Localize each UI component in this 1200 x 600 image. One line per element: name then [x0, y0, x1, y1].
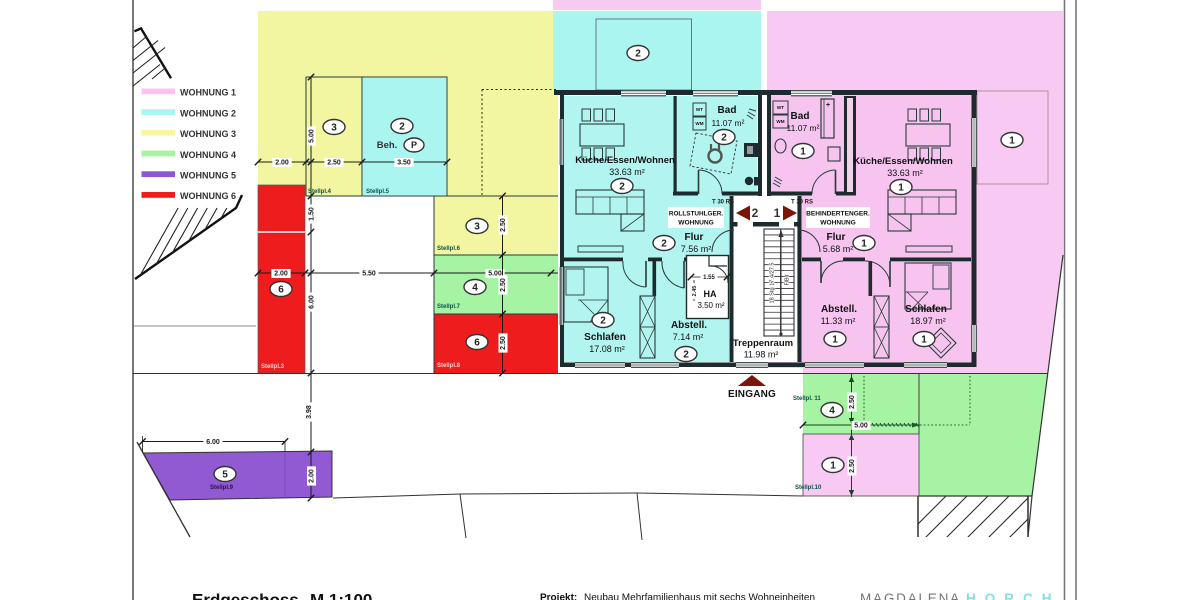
svg-text:2.50: 2.50 — [327, 160, 341, 167]
svg-text:Bad: Bad — [791, 111, 810, 122]
svg-text:1: 1 — [832, 335, 838, 346]
svg-text:Projekt:: Projekt: — [540, 593, 577, 600]
svg-text:33.63 m²: 33.63 m² — [609, 167, 645, 177]
svg-text:Neubau Mehrfamilienhaus mit se: Neubau Mehrfamilienhaus mit sechs Wohnei… — [584, 593, 815, 600]
svg-text:WOHNUNG 5: WOHNUNG 5 — [180, 171, 236, 181]
svg-text:2.00: 2.00 — [275, 160, 289, 167]
svg-text:Beh.: Beh. — [377, 140, 398, 151]
svg-text:WM: WM — [695, 121, 703, 126]
svg-text:WT: WT — [777, 105, 784, 110]
svg-text:2.50: 2.50 — [500, 278, 507, 292]
svg-text:Treppenraum: Treppenraum — [733, 338, 793, 349]
svg-text:WOHNUNG 1: WOHNUNG 1 — [180, 88, 236, 98]
svg-text:4: 4 — [472, 283, 478, 294]
svg-text:Küche/Essen/Wohnen: Küche/Essen/Wohnen — [575, 155, 675, 166]
svg-text:Bad: Bad — [718, 105, 737, 116]
svg-text:Stellpl.7: Stellpl.7 — [437, 304, 461, 310]
svg-text:2.50: 2.50 — [500, 218, 507, 232]
svg-text:3.50: 3.50 — [397, 160, 411, 167]
svg-text:33.63 m²: 33.63 m² — [887, 168, 923, 178]
svg-text:5.68 m²: 5.68 m² — [823, 244, 854, 254]
svg-text:1: 1 — [921, 335, 927, 346]
svg-text:3: 3 — [474, 222, 480, 233]
svg-text:1: 1 — [861, 239, 867, 250]
svg-text:3.50 m²: 3.50 m² — [697, 301, 724, 310]
svg-text:11.07 m²: 11.07 m² — [712, 118, 745, 128]
svg-text:3.98: 3.98 — [306, 405, 313, 419]
svg-text:WOHNUNG 4: WOHNUNG 4 — [180, 150, 236, 160]
svg-text:HA: HA — [704, 289, 717, 299]
svg-text:1: 1 — [1009, 136, 1015, 147]
svg-text:2.50: 2.50 — [849, 459, 856, 473]
svg-text:11.98 m²: 11.98 m² — [744, 350, 779, 360]
svg-text:1: 1 — [800, 147, 806, 158]
svg-text:WOHNUNG 6: WOHNUNG 6 — [180, 191, 236, 201]
svg-text:1: 1 — [898, 183, 904, 194]
svg-text:Erdgeschoss: Erdgeschoss — [192, 591, 299, 600]
svg-text:2: 2 — [619, 182, 625, 193]
svg-text:3: 3 — [331, 123, 337, 134]
svg-text:T 30 RS: T 30 RS — [712, 200, 734, 206]
svg-text:1: 1 — [774, 206, 781, 220]
svg-text:6: 6 — [278, 285, 284, 296]
svg-text:18 Stg 17.4/27.5: 18 Stg 17.4/27.5 — [770, 262, 776, 303]
svg-text:Stellpl.9: Stellpl.9 — [210, 485, 234, 491]
svg-text:M 1:100: M 1:100 — [310, 591, 372, 600]
svg-text:Stellpl.8: Stellpl.8 — [437, 363, 461, 369]
svg-text:17.08 m²: 17.08 m² — [589, 344, 625, 354]
svg-text:Flur: Flur — [827, 232, 846, 243]
svg-text:ROLLSTUHLGER.: ROLLSTUHLGER. — [669, 211, 724, 218]
svg-text:2.00: 2.00 — [309, 469, 316, 483]
svg-text:2: 2 — [399, 122, 405, 133]
svg-text:Schlafen: Schlafen — [584, 332, 626, 343]
svg-text:Stellpl.6: Stellpl.6 — [437, 246, 461, 252]
svg-text:2: 2 — [661, 239, 667, 250]
svg-text:2.50: 2.50 — [500, 336, 507, 350]
svg-text:1: 1 — [830, 461, 836, 472]
svg-text:2: 2 — [752, 206, 759, 220]
svg-text:5.00: 5.00 — [309, 129, 316, 143]
svg-text:11.33 m²: 11.33 m² — [821, 316, 856, 326]
svg-text:2: 2 — [600, 316, 606, 327]
svg-text:Abstell.: Abstell. — [821, 304, 857, 315]
svg-text:4: 4 — [829, 406, 835, 417]
svg-text:11.07 m²: 11.07 m² — [787, 123, 820, 133]
svg-text:EINGANG: EINGANG — [728, 389, 776, 400]
svg-text:5: 5 — [222, 470, 228, 481]
svg-text:7.56 m²: 7.56 m² — [681, 244, 712, 254]
svg-text:2.00: 2.00 — [274, 271, 288, 278]
svg-text:2: 2 — [721, 133, 727, 144]
svg-text:BEHINDERTENGER.: BEHINDERTENGER. — [806, 211, 870, 218]
svg-text:Stellpl.4: Stellpl.4 — [308, 189, 332, 195]
svg-text:Schlafen: Schlafen — [905, 304, 947, 315]
svg-text:18.97 m²: 18.97 m² — [910, 316, 946, 326]
svg-text:2.50: 2.50 — [849, 395, 856, 409]
svg-text:2: 2 — [635, 49, 641, 60]
svg-text:5.00: 5.00 — [854, 423, 868, 430]
svg-text:WOHNUNG 2: WOHNUNG 2 — [180, 108, 236, 118]
svg-text:Stellpl.3: Stellpl.3 — [261, 364, 285, 370]
svg-text:Stellpl.5: Stellpl.5 — [366, 189, 390, 195]
svg-text:6.00: 6.00 — [309, 295, 316, 309]
svg-text:5.50: 5.50 — [362, 271, 376, 278]
svg-text:6: 6 — [474, 338, 480, 349]
svg-text:WM: WM — [776, 119, 784, 124]
svg-text:WOHNUNG: WOHNUNG — [820, 220, 856, 227]
svg-text:2.45: 2.45 — [692, 286, 698, 297]
svg-text:P: P — [411, 140, 417, 150]
svg-text:Stellpl.10: Stellpl.10 — [795, 485, 822, 491]
svg-text:2: 2 — [683, 350, 689, 361]
svg-text:Küche/Essen/Wohnen: Küche/Essen/Wohnen — [853, 156, 953, 167]
svg-text:1.50: 1.50 — [309, 207, 316, 221]
svg-text:WOHNUNG: WOHNUNG — [678, 220, 714, 227]
svg-text:6.00: 6.00 — [206, 439, 220, 446]
svg-text:HORCH: HORCH — [966, 591, 1061, 600]
svg-text:+: + — [826, 102, 830, 109]
svg-text:T 30 RS: T 30 RS — [791, 200, 813, 206]
svg-text:WT: WT — [696, 107, 703, 112]
svg-text:FlBd: FlBd — [785, 275, 791, 286]
svg-text:Stellpl. 11: Stellpl. 11 — [793, 396, 821, 402]
svg-text:MAGDALENA: MAGDALENA — [860, 591, 961, 600]
svg-text:1.55: 1.55 — [703, 275, 715, 281]
svg-text:Abstell.: Abstell. — [671, 320, 707, 331]
svg-text:Flur: Flur — [685, 232, 704, 243]
svg-text:7.14 m²: 7.14 m² — [673, 332, 704, 342]
svg-text:WOHNUNG 3: WOHNUNG 3 — [180, 129, 236, 139]
